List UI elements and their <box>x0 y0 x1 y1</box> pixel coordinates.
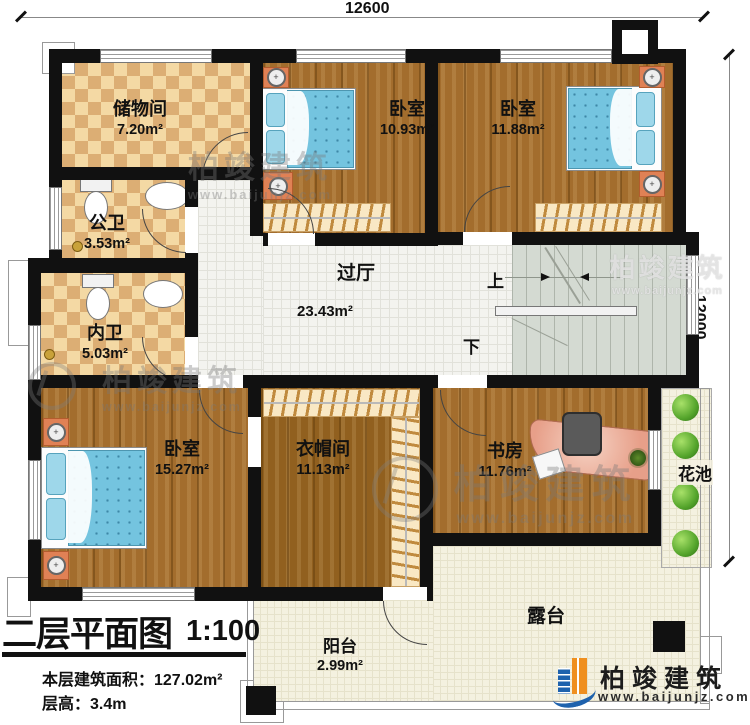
watermark-logo <box>28 362 76 410</box>
bedroom-cloak-divider <box>248 467 261 600</box>
bush-icon <box>672 483 699 510</box>
toilet-icon <box>86 287 110 320</box>
terrace-railing-right <box>700 388 710 704</box>
nightstand: + <box>43 551 69 580</box>
bath-right-wall <box>185 180 198 207</box>
top-dimension-value: 12600 <box>345 0 390 18</box>
hall-bottom-wall <box>261 375 438 388</box>
window <box>28 460 41 540</box>
closet-rack <box>263 389 420 417</box>
window <box>49 187 62 250</box>
stairs-down-label: 下 <box>463 333 480 358</box>
sink-icon <box>143 280 183 308</box>
brand-logo-icon <box>556 655 598 705</box>
stairs-up-label: 上 <box>487 267 504 292</box>
drawing-scale: 1:100 <box>186 615 260 648</box>
exterior-wall-bottom <box>427 587 433 601</box>
lamp-icon: + <box>267 68 286 87</box>
plant-icon <box>630 450 646 466</box>
storage-bedroom-divider <box>250 63 263 236</box>
window <box>686 255 699 335</box>
stairs-bottom-wall <box>505 375 699 388</box>
nightstand: + <box>639 66 665 88</box>
room-label-bedroom-a: 卧室 10.93m² <box>352 98 462 139</box>
nightstand: + <box>263 67 289 88</box>
bed-pillow <box>636 92 655 127</box>
lamp-icon: + <box>643 68 662 87</box>
bedroom-a-bottom-wall <box>263 233 268 246</box>
exterior-wall-right-upper <box>673 49 686 239</box>
bath-right-wall <box>185 253 198 337</box>
hall-bottom-wall <box>487 375 512 388</box>
floor-height-line: 层高：3.4m <box>42 690 126 714</box>
bedroom-divider-wall <box>425 63 438 245</box>
exterior-wall-bottom <box>195 587 383 601</box>
nightstand: + <box>639 171 665 197</box>
window <box>100 49 212 63</box>
nightstand: + <box>43 418 69 446</box>
toilet-icon <box>80 178 112 192</box>
stair-direction-line <box>505 277 623 278</box>
bath-divider-wall <box>28 258 198 273</box>
sink-icon <box>145 182 189 210</box>
floor-plan: 12600 12000 上 下 <box>0 0 750 725</box>
floor-drain-icon <box>44 349 55 360</box>
title-underline <box>2 652 246 657</box>
bush-icon <box>672 394 699 421</box>
stair-arrow <box>580 273 589 281</box>
lamp-icon: + <box>47 556 66 575</box>
bush-icon <box>672 530 699 557</box>
bed-pillow <box>266 93 285 127</box>
bedroom-cloak-divider <box>248 388 261 417</box>
bed-blanket <box>68 451 92 543</box>
room-label-storage: 储物间 7.20m² <box>70 98 210 139</box>
bedroom-a-bottom-wall <box>315 233 438 246</box>
stair-arrow <box>541 273 550 281</box>
room-label-terrace: 露台 <box>527 601 565 628</box>
floor-area-line: 本层建筑面积：127.02m² <box>42 666 223 690</box>
bush-icon <box>672 432 699 459</box>
bed-pillow <box>266 130 285 164</box>
lamp-icon: + <box>47 423 66 442</box>
toilet-icon <box>82 274 114 288</box>
room-area-hall: 23.43m² <box>297 303 353 320</box>
room-label-bedroom-b: 卧室 11.88m² <box>463 98 573 139</box>
room-label-public-bath: 公卫 3.53m² <box>62 212 152 253</box>
room-label-hall: 过厅 <box>337 258 375 285</box>
room-label-study: 书房 11.76m² <box>455 440 555 481</box>
storage-bottom-wall <box>62 167 250 180</box>
stairs-top-wall <box>512 232 699 245</box>
column <box>246 686 276 715</box>
bed-pillow <box>46 453 66 495</box>
room-label-bedroom-c: 卧室 15.27m² <box>132 438 232 479</box>
watermark-logo <box>372 456 438 522</box>
exterior-wall-bottom <box>28 587 82 601</box>
bedroom-b-bottom-wall <box>438 232 463 245</box>
bed-blanket <box>610 89 632 166</box>
lamp-icon: + <box>643 175 662 194</box>
bedroom-c-top-wall <box>243 375 261 388</box>
bed-blanket <box>287 91 309 165</box>
study-bottom-wall <box>420 533 661 546</box>
window <box>500 49 612 63</box>
bed-pillow <box>636 130 655 165</box>
drawing-title: 二层平面图 <box>2 606 172 657</box>
chimney <box>612 20 658 64</box>
window <box>296 49 406 63</box>
room-label-inner-bath: 内卫 5.03m² <box>60 322 150 363</box>
room-label-flower-bed: 花池 <box>677 460 713 485</box>
window <box>648 430 661 490</box>
office-chair <box>562 412 602 456</box>
brand-url: www.baijunjz.com <box>598 689 750 704</box>
right-dimension-line <box>729 55 730 563</box>
room-label-cloakroom: 衣帽间 11.13m² <box>273 438 373 479</box>
room-label-balcony: 阳台 2.99m² <box>290 636 390 675</box>
column <box>653 621 685 652</box>
window <box>82 587 195 601</box>
bed-pillow <box>46 498 66 540</box>
stair-rail <box>495 306 637 316</box>
wardrobe <box>535 203 662 232</box>
